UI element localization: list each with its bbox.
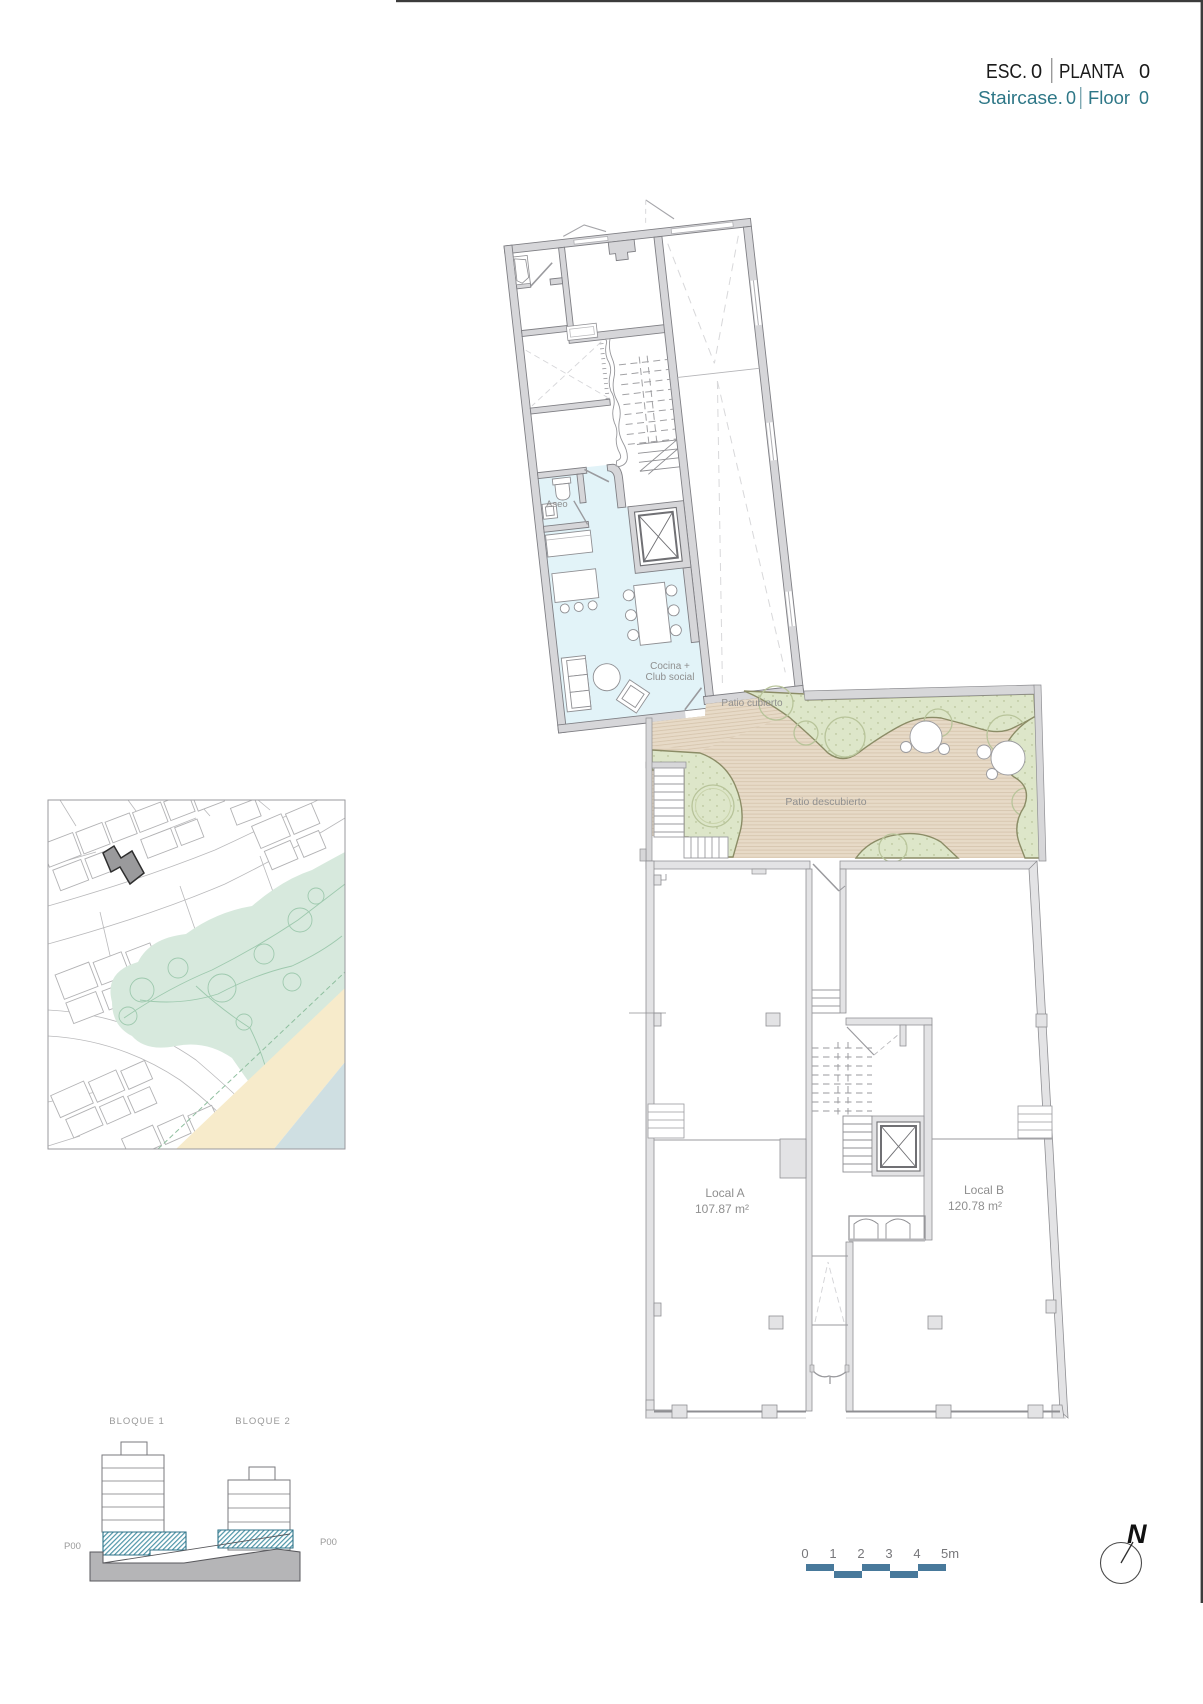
svg-text:Club social: Club social — [646, 672, 695, 683]
svg-text:Patio descubierto: Patio descubierto — [785, 796, 866, 808]
svg-text:Aseo: Aseo — [546, 499, 568, 510]
svg-text:107.87 m²: 107.87 m² — [695, 1202, 749, 1216]
svg-text:0: 0 — [1031, 61, 1042, 83]
svg-text:0: 0 — [801, 1546, 808, 1561]
svg-text:ESC.: ESC. — [986, 61, 1027, 83]
svg-text:N: N — [1127, 1519, 1147, 1549]
svg-text:Cocina +: Cocina + — [650, 661, 690, 672]
svg-text:0: 0 — [1139, 61, 1150, 83]
svg-text:BLOQUE 1: BLOQUE 1 — [109, 1416, 165, 1427]
svg-text:Staircase.: Staircase. — [978, 88, 1063, 108]
svg-text:1: 1 — [829, 1546, 836, 1561]
svg-text:4: 4 — [913, 1546, 920, 1561]
svg-text:P00: P00 — [64, 1541, 81, 1552]
svg-text:Floor: Floor — [1088, 88, 1130, 108]
svg-text:Patio cubierto: Patio cubierto — [721, 698, 783, 709]
svg-text:120.78 m²: 120.78 m² — [948, 1199, 1002, 1213]
svg-text:Local A: Local A — [705, 1186, 744, 1200]
svg-text:Local B: Local B — [964, 1183, 1004, 1197]
svg-text:P00: P00 — [320, 1537, 337, 1548]
svg-text:0: 0 — [1066, 88, 1076, 108]
svg-text:BLOQUE 2: BLOQUE 2 — [235, 1416, 291, 1427]
svg-text:0: 0 — [1139, 88, 1149, 108]
svg-text:PLANTA: PLANTA — [1059, 61, 1125, 83]
svg-text:2: 2 — [857, 1546, 864, 1561]
svg-text:3: 3 — [885, 1546, 892, 1561]
svg-text:5m: 5m — [941, 1546, 959, 1561]
